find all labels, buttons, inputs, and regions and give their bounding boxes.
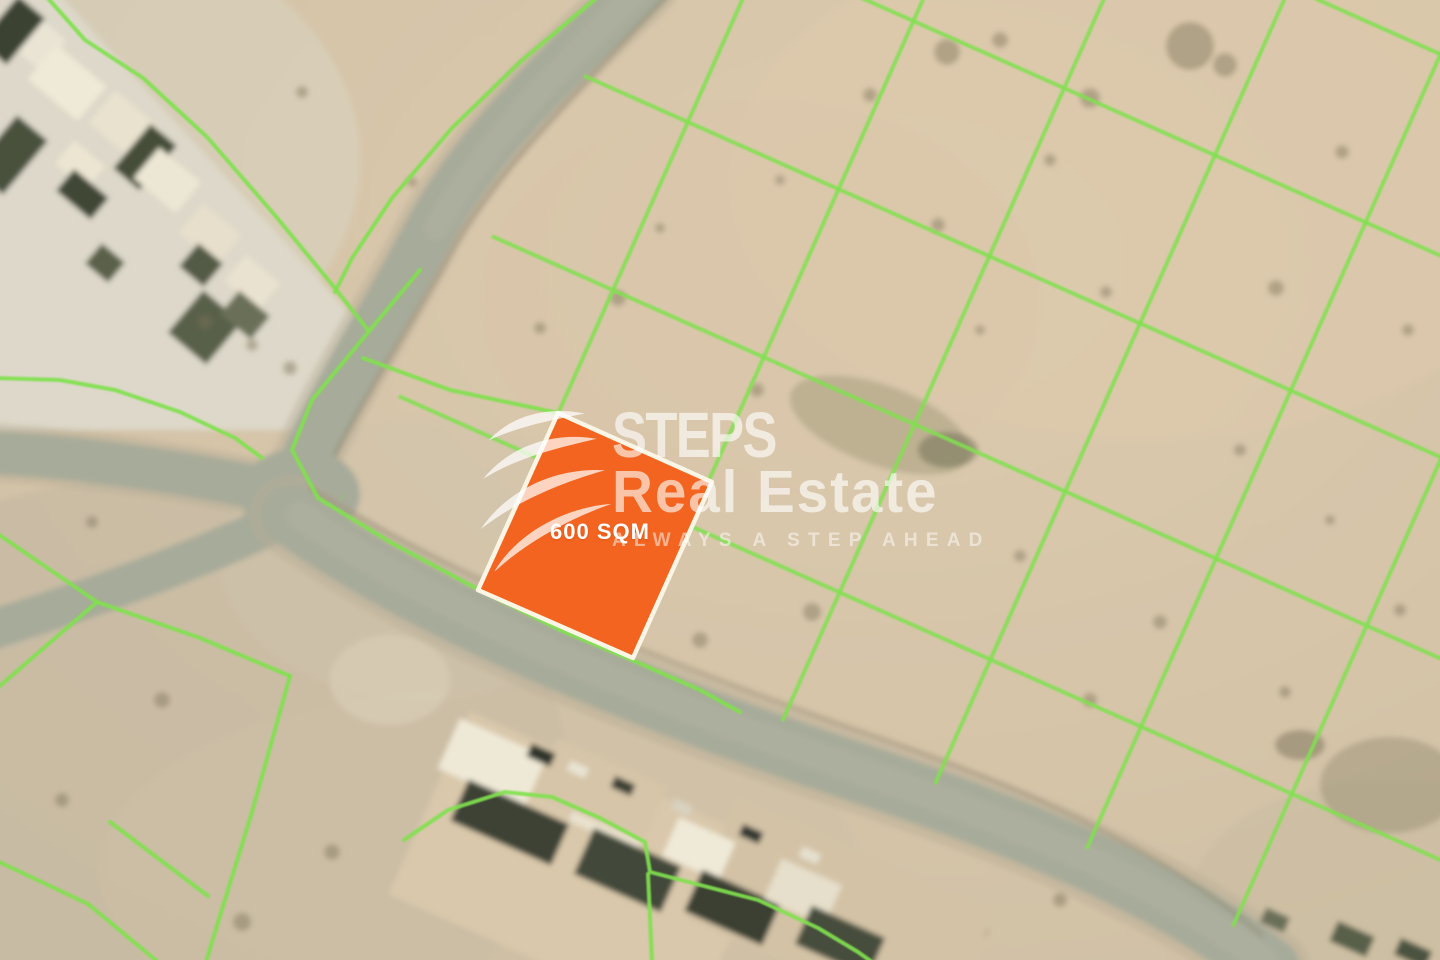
watermark-brand-line1: STEPS (612, 407, 922, 464)
steps-logo-icon (462, 403, 614, 571)
watermark-brand-line2: Real Estate (612, 464, 975, 520)
satellite-map: 600 SQM STEPS Real Estate ALWAYS A STEP … (0, 0, 1440, 960)
watermark-tagline: ALWAYS A STEP AHEAD (612, 530, 991, 552)
watermark: STEPS Real Estate ALWAYS A STEP AHEAD (612, 407, 991, 552)
